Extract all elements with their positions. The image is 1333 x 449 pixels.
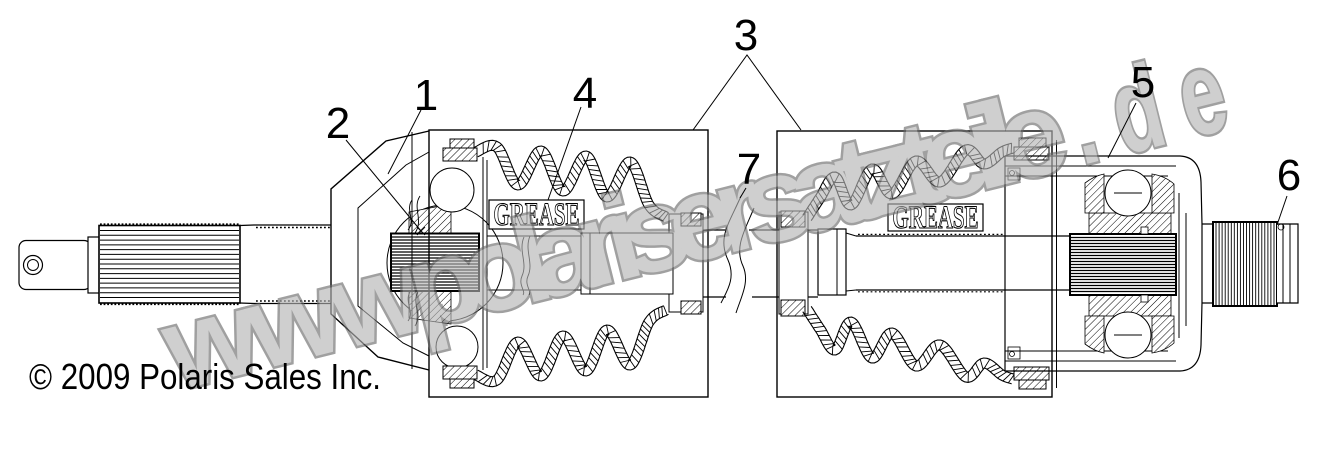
svg-text:6: 6 [1277,151,1301,200]
svg-text:5: 5 [1131,58,1155,107]
svg-text:7: 7 [737,145,761,194]
svg-text:4: 4 [573,69,597,118]
svg-text:© 2009 Polaris Sales Inc.: © 2009 Polaris Sales Inc. [29,356,381,397]
svg-text:3: 3 [734,11,758,60]
svg-text:1: 1 [414,71,438,120]
